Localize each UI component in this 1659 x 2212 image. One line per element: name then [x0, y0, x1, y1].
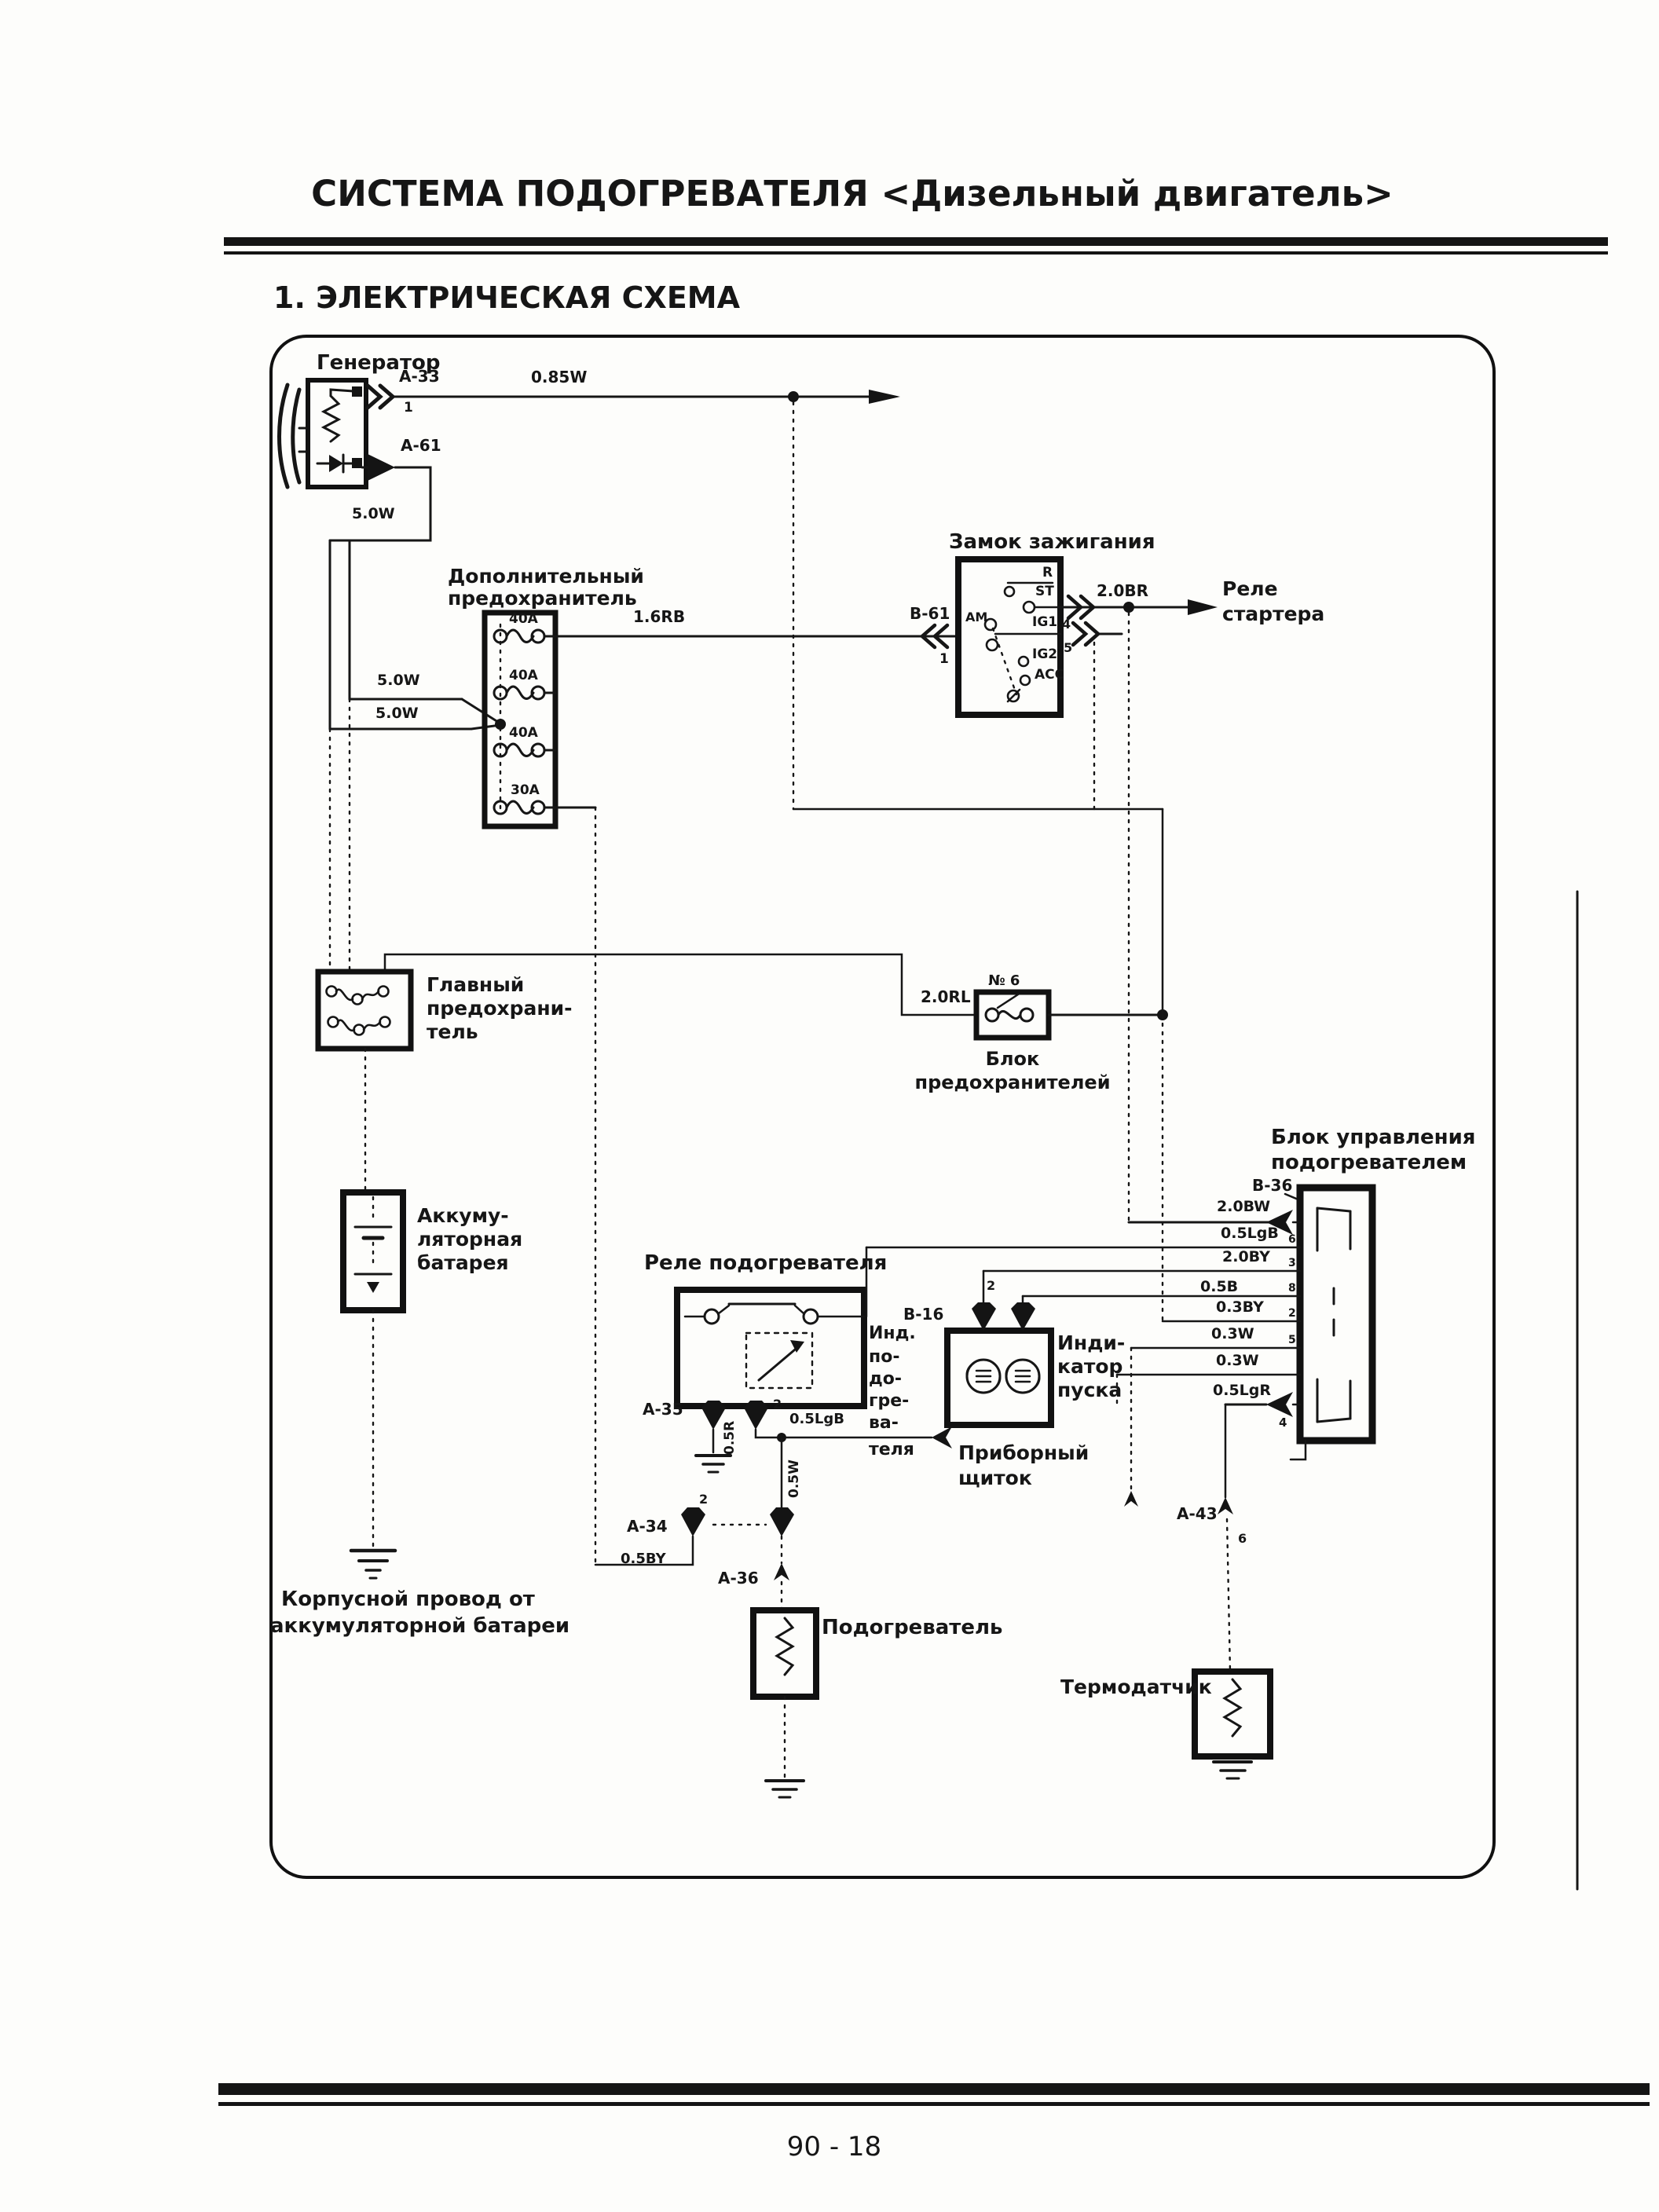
cu-wire-label: 0.5LgB — [1221, 1225, 1279, 1242]
fuse-element-icon — [507, 801, 533, 814]
up-arrow-icon — [1124, 1491, 1138, 1507]
wire-05w-label: 0.5W — [786, 1459, 802, 1498]
ig-pin-5: 5 — [1064, 640, 1072, 655]
battery-label: Аккуму- — [417, 1204, 509, 1227]
start-indicator-label: пуска — [1057, 1379, 1122, 1401]
body-wire-note: Корпусной провод от — [281, 1588, 535, 1611]
connector-arrow-icon — [1011, 1302, 1035, 1331]
harness-dashed — [1227, 1519, 1230, 1672]
main-fuse-group: Главный предохрани- тель — [318, 954, 976, 1192]
fuse-block-group: 2.0RL № 6 Блок предохранителей — [914, 809, 1168, 1321]
fuse-element-icon — [507, 630, 533, 643]
header-rule-thick — [224, 237, 1608, 246]
a33-pin: 1 — [404, 400, 413, 416]
connector-b61-label: B-61 — [910, 604, 950, 623]
indicator-lamp-icon — [1006, 1360, 1040, 1393]
thermo-sensor-group: A-43 6 Термодатчик — [1060, 1404, 1270, 1778]
cu-wire-label: 0.5B — [1200, 1278, 1238, 1295]
relay-terminal — [705, 1309, 719, 1324]
relay-lead — [719, 1306, 729, 1313]
indicator-lamp-icon — [967, 1360, 1001, 1393]
ignition-switch-label: Замок зажигания — [949, 530, 1155, 554]
contact-point — [1020, 676, 1030, 685]
wire-05lgb-label: 0.5LgB — [789, 1411, 844, 1427]
battery-label: батарея — [417, 1251, 509, 1274]
cu-wire-label: 0.5LgR — [1213, 1382, 1271, 1399]
generator-pulley-icon — [293, 390, 299, 482]
fuse-slash — [998, 994, 1018, 1008]
cu-pin: 5 — [1288, 1334, 1296, 1346]
connector-chevron-icon — [368, 386, 380, 408]
fuse-rating: 40A — [509, 725, 539, 741]
fuse-30a: 30A — [494, 782, 595, 814]
start-indicator-label: катор — [1057, 1355, 1122, 1378]
cu-pin: 6 — [1288, 1233, 1296, 1246]
battery-label: ляторная — [417, 1228, 522, 1251]
page-header: СИСТЕМА ПОДОГРЕВАТЕЛЯ <Дизельный двигате… — [224, 173, 1608, 315]
wire-50w-label: 5.0W — [352, 505, 395, 522]
manual-page: СИСТЕМА ПОДОГРЕВАТЕЛЯ <Дизельный двигате… — [0, 0, 1659, 2212]
relay-actuator — [759, 1346, 800, 1380]
cu-wire-label: 0.3W — [1211, 1325, 1254, 1342]
control-unit-label: подогревателем — [1271, 1151, 1467, 1174]
contact-st: ST — [1035, 584, 1054, 599]
generator-terminal — [352, 386, 362, 397]
additional-fuse-group: Дополнительный предохранитель 40A 40A 40… — [448, 565, 644, 1565]
heater-indicator-line: до- — [869, 1369, 902, 1389]
fuse-terminal — [1020, 1009, 1033, 1021]
section-title: 1. ЭЛЕКТРИЧЕСКАЯ СХЕМА — [273, 280, 741, 315]
fuse-rating: 40A — [509, 668, 539, 683]
connector-chevron-icon — [1073, 623, 1086, 645]
connector-a61-arrow-icon — [368, 454, 395, 481]
connector-strip-icon — [1317, 1208, 1350, 1422]
relay-coil-box — [746, 1333, 812, 1388]
fuse-40a-3: 40A — [494, 725, 555, 756]
fuse-rating: 30A — [511, 782, 540, 798]
connector-arrow-icon — [681, 1507, 705, 1536]
link-terminal — [379, 987, 389, 997]
connector-a34-label: A-34 — [627, 1517, 668, 1536]
contact-acc: ACC — [1035, 667, 1064, 683]
junction-dot — [788, 391, 799, 402]
cu-pin: 4 — [1279, 1415, 1287, 1430]
fuse-element-icon — [507, 687, 533, 699]
footer-rule-thick — [218, 2083, 1650, 2095]
fuse-number: № 6 — [988, 972, 1020, 989]
ground-icon — [1214, 1762, 1251, 1778]
up-arrow-icon — [774, 1563, 789, 1580]
control-unit-box — [1300, 1188, 1372, 1441]
stator-winding-icon — [324, 396, 339, 441]
up-arrow-icon — [1218, 1497, 1233, 1514]
link-element — [336, 990, 353, 1000]
cu-pin: 8 — [1288, 1282, 1296, 1295]
junction-dot — [1123, 602, 1134, 613]
cu-wire-label: 2.0BW — [1217, 1198, 1270, 1215]
strip-edge — [1317, 1419, 1350, 1422]
cu-wire-label: 0.3W — [1216, 1352, 1259, 1369]
rotor-dashed — [993, 628, 1016, 694]
starter-relay-label: Реле — [1222, 577, 1278, 600]
fuse-40a-2: 40A — [494, 668, 555, 699]
contact-point — [985, 619, 996, 630]
wire-05r-label: 0.5R — [722, 1421, 738, 1455]
b16-pin: 2 — [987, 1278, 995, 1293]
b61-pin: 1 — [939, 651, 949, 667]
body-wire-note: аккумуляторной батареи — [270, 1614, 569, 1638]
contact-point — [1005, 587, 1014, 596]
heater-label: Подогреватель — [822, 1616, 1003, 1639]
additional-fuse-label: Дополнительный — [448, 565, 644, 588]
fuse-rating: 40A — [509, 611, 539, 627]
connector-arrow-icon — [932, 1426, 952, 1448]
fuse-block-label: Блок — [986, 1048, 1040, 1070]
a43-pin: 6 — [1238, 1531, 1247, 1546]
cu-wire-label: 0.3BY — [1216, 1298, 1264, 1316]
header-rule-thin — [224, 251, 1608, 255]
cu-wire-label: 2.0BY — [1222, 1248, 1270, 1265]
connector-arrow-icon — [744, 1401, 768, 1430]
wire-50w-feed — [462, 699, 500, 723]
connector-b16-label: B-16 — [903, 1305, 943, 1324]
connector-b36-label: B-36 — [1252, 1176, 1292, 1195]
wire-50w-path — [350, 467, 430, 540]
heater-relay-label: Реле подогревателя — [644, 1251, 887, 1275]
link-terminal — [380, 1017, 390, 1027]
main-fuse-box — [318, 972, 411, 1049]
ignition-switch-group: Замок зажигания R ST IG1 AM IG2 ACC B-61… — [910, 530, 1324, 1222]
diode-icon — [329, 455, 343, 472]
link-terminal — [328, 1017, 339, 1027]
junction-dot — [495, 719, 506, 730]
main-fuse-label: тель — [427, 1020, 478, 1043]
heater-indicator-label: Инд. по- до- гре- ва- теля — [869, 1324, 916, 1459]
wire-50w-label: 5.0W — [375, 705, 419, 722]
strip-edge — [1317, 1208, 1350, 1211]
start-indicator-label: Инди- — [1057, 1331, 1125, 1354]
fuse-element-icon — [998, 1011, 1020, 1018]
wire-ignition-feed: 1.6RB — [555, 607, 958, 636]
page-footer: 90 - 18 — [218, 2083, 1650, 2163]
a34-pin: 2 — [699, 1492, 708, 1507]
instrument-panel-label: Приборный — [958, 1441, 1089, 1464]
connector-a33-label: A-33 — [399, 367, 440, 386]
wire-arrowhead-icon — [1188, 599, 1218, 615]
contact-r: R — [1042, 565, 1053, 580]
fuse-40a-1: 40A — [494, 611, 555, 643]
starter-relay-label: стартера — [1222, 602, 1324, 625]
heater-indicator-line: ва- — [869, 1413, 899, 1433]
heater-group: Подогреватель — [753, 1610, 1003, 1797]
link-element — [338, 1020, 354, 1031]
battery-group: Аккуму- ляторная батарея Корпусной прово… — [270, 1192, 569, 1638]
connector-a36-label: A-36 — [718, 1569, 759, 1588]
contact-point — [987, 639, 998, 650]
ground-icon — [696, 1456, 731, 1472]
fusible-links-icon — [327, 987, 390, 1035]
link-element — [364, 1022, 380, 1030]
link-terminal — [354, 1025, 364, 1035]
control-unit-label: Блок управления — [1271, 1126, 1476, 1149]
ig-pin-4: 4 — [1062, 617, 1071, 632]
battery-minus-icon — [367, 1282, 379, 1293]
wire-085w-label: 0.85W — [531, 368, 587, 386]
main-fuse-label: предохрани- — [427, 997, 573, 1020]
additional-fuse-label: предохранитель — [448, 587, 637, 610]
heater-element-icon — [777, 1618, 793, 1675]
cu-pin: 3 — [1288, 1257, 1296, 1269]
page-title: СИСТЕМА ПОДОГРЕВАТЕЛЯ <Дизельный двигате… — [311, 173, 1393, 214]
sensor-element-icon — [1225, 1679, 1240, 1736]
heater-indicator-line: по- — [869, 1347, 899, 1367]
connector-arrow-icon — [972, 1302, 996, 1331]
cu-pin: 2 — [1288, 1307, 1296, 1320]
link-terminal — [353, 994, 363, 1005]
heater-indicator-line: теля — [869, 1440, 914, 1459]
connector-arrow-icon — [770, 1507, 794, 1536]
heater-indicator-line: гре- — [869, 1391, 909, 1411]
relay-terminal — [804, 1309, 818, 1324]
a35-pin: 2 — [773, 1397, 782, 1412]
link-element — [362, 991, 379, 999]
fuse-block-label: предохранителей — [914, 1071, 1110, 1093]
wire-20br-label: 2.0BR — [1097, 581, 1148, 600]
wire-gen-branch: 5.0W 5.0W 5.0W — [330, 467, 500, 972]
connector-a61-label: A-61 — [401, 436, 441, 455]
stator-lead — [331, 390, 353, 396]
wire-arrowhead-icon — [869, 390, 900, 404]
wire-20rl-label: 2.0RL — [921, 987, 971, 1006]
instrument-panel-group: 2 B-16 Инди- катор пуска Приборный щиток… — [869, 1271, 1125, 1489]
contact-ig2: IG2 — [1032, 646, 1057, 662]
contact-point — [1019, 657, 1028, 666]
generator-terminal — [352, 458, 362, 468]
heater-box — [753, 1610, 816, 1697]
relay-lead — [795, 1306, 804, 1313]
connector-a35-label: A-35 — [643, 1400, 683, 1419]
contact-point — [1024, 602, 1035, 613]
footer-rule-thin — [218, 2102, 1650, 2106]
fuse-terminal — [986, 1009, 998, 1021]
contact-am: AM — [965, 610, 987, 624]
connector-a43-label: A-43 — [1177, 1504, 1218, 1523]
wire-16rb-label: 1.6RB — [633, 607, 685, 626]
ground-icon — [766, 1781, 804, 1797]
generator-pulley-icon — [280, 385, 288, 487]
heater-indicator-line: Инд. — [869, 1324, 916, 1343]
contact-ig1: IG1 — [1032, 614, 1057, 630]
thermo-sensor-label: Термодатчик — [1060, 1675, 1212, 1698]
link-terminal — [327, 987, 337, 997]
instrument-panel-label: щиток — [958, 1467, 1032, 1489]
page-number: 90 - 18 — [787, 2131, 881, 2163]
wire-50w-label: 5.0W — [377, 672, 420, 689]
fuse-element-icon — [507, 744, 533, 756]
ground-icon — [351, 1551, 395, 1578]
main-fuse-label: Главный — [427, 973, 524, 996]
